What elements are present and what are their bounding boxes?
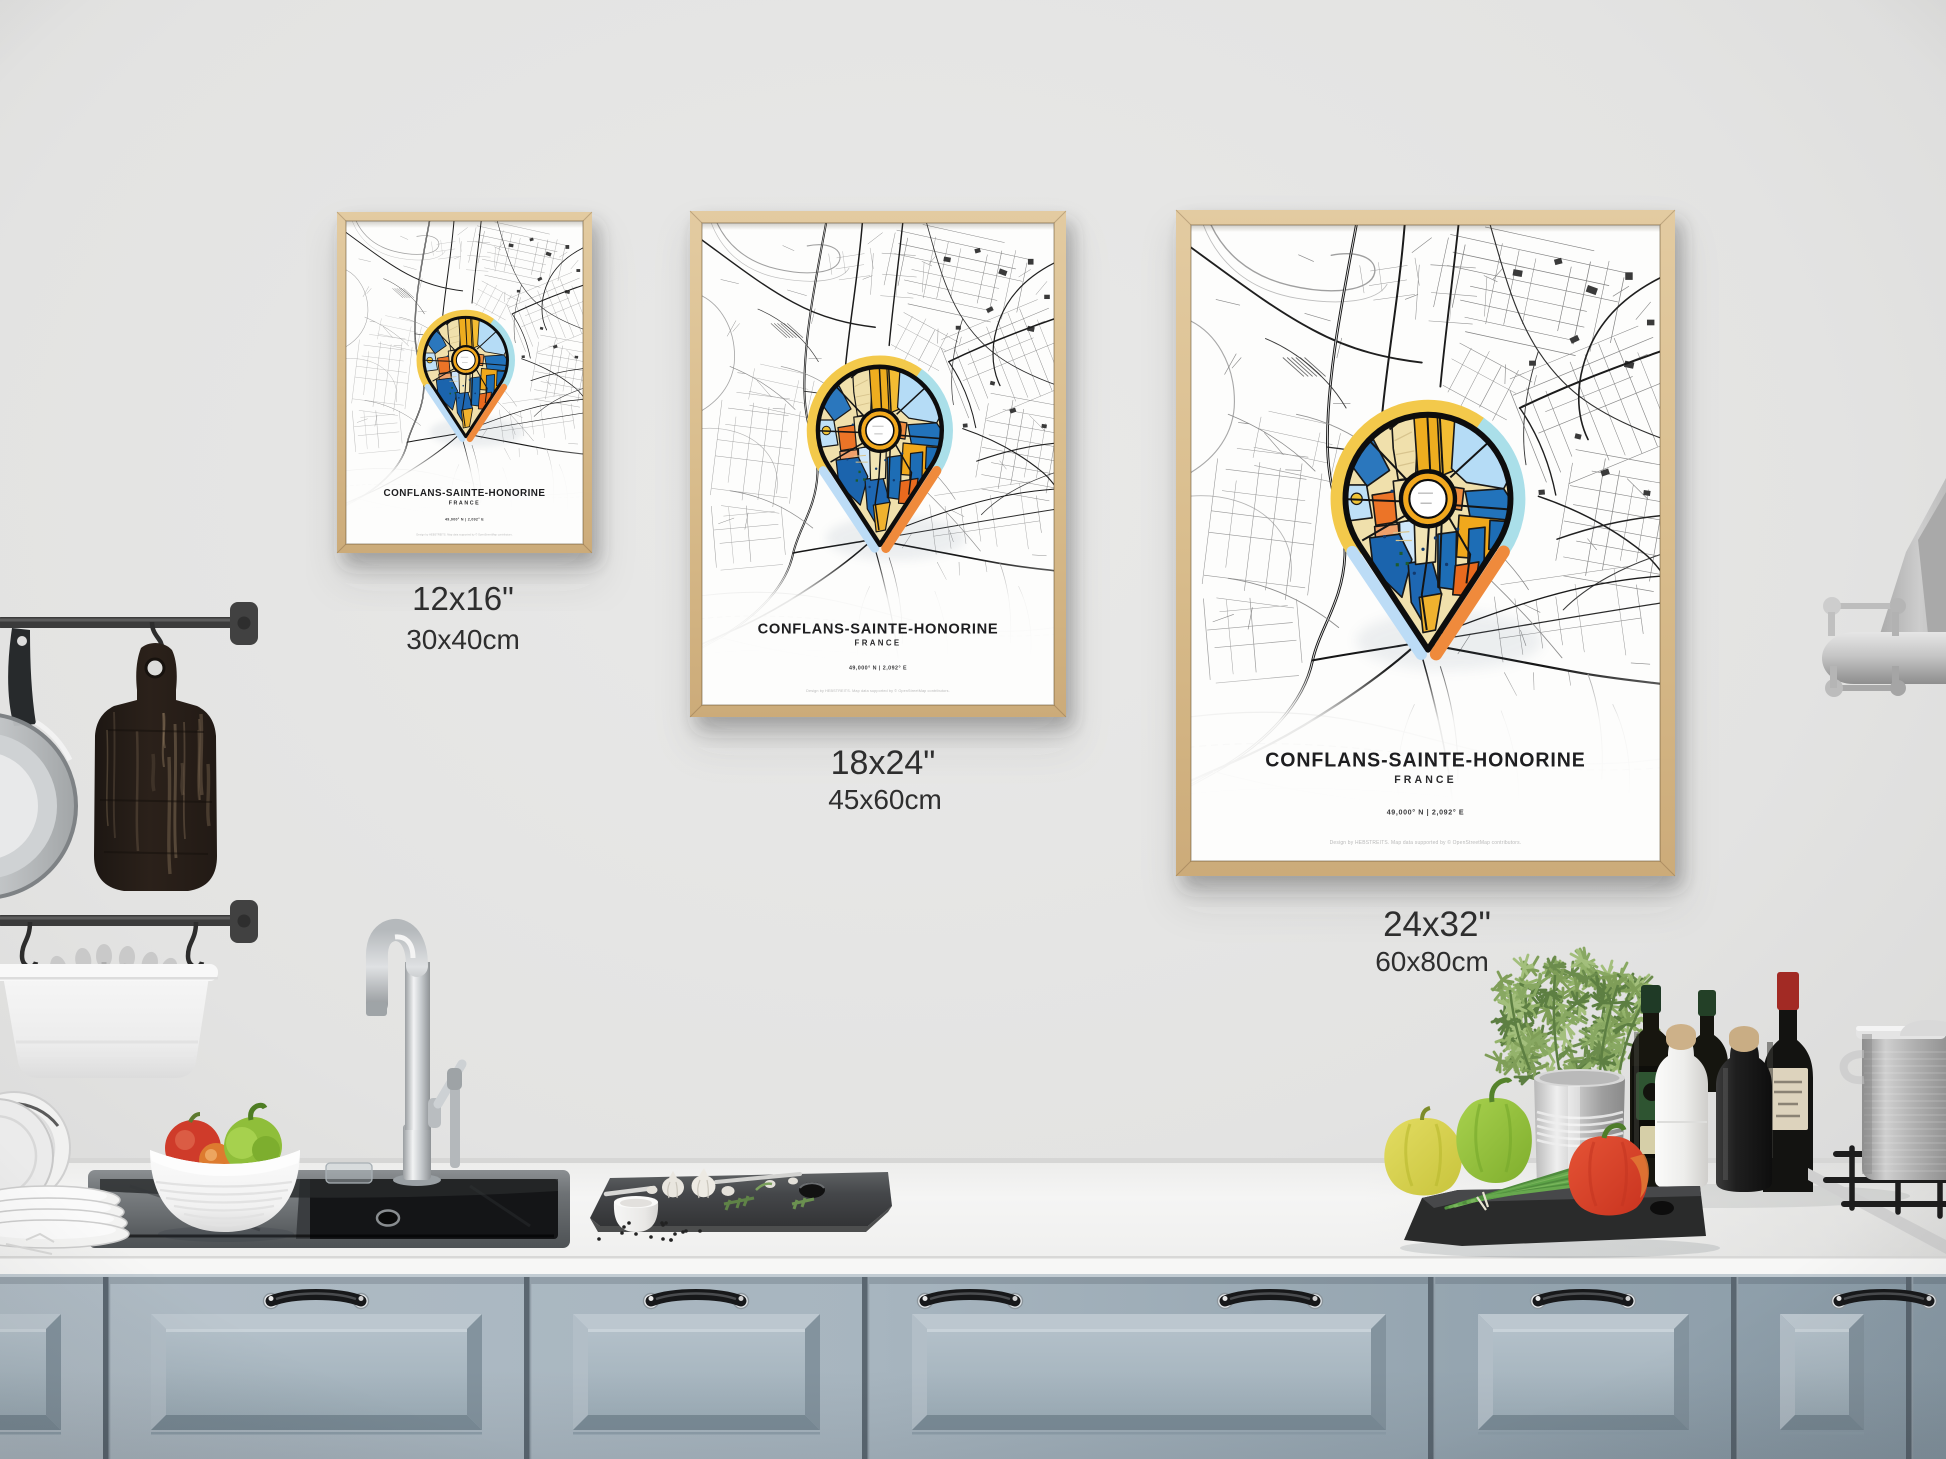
svg-text:24x32": 24x32" [1383,905,1491,944]
svg-text:30x40cm: 30x40cm [406,624,520,655]
svg-text:45x60cm: 45x60cm [828,784,942,815]
svg-text:60x80cm: 60x80cm [1375,946,1489,977]
svg-text:18x24": 18x24" [831,744,936,782]
svg-text:12x16": 12x16" [412,580,514,617]
